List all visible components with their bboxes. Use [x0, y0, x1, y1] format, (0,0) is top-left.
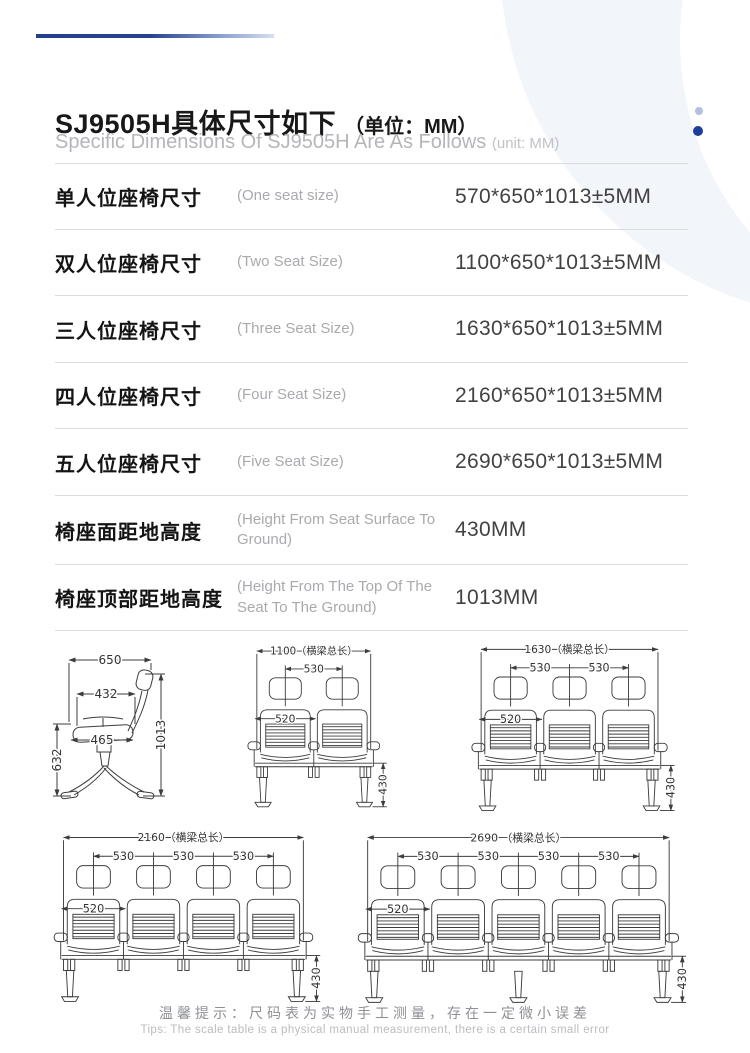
row-label-en: (Height From The Top Of The Seat To The … [237, 577, 455, 618]
dim-label: 530 [530, 661, 551, 674]
headrest-outline [135, 669, 154, 692]
dim-label: 530 [598, 850, 620, 863]
table-row: 三人位座椅尺寸 (Three Seat Size) 1630*650*1013±… [55, 296, 688, 363]
dim-label: 530 [588, 661, 609, 674]
row-value: 430MM [455, 518, 527, 542]
dim-seat-length: 465 [91, 733, 114, 747]
leg-outline [69, 766, 106, 795]
dim-label: 530 [538, 850, 560, 863]
front-view-svg: 2160（横梁总长）530530530520430 [52, 830, 328, 1008]
backrest-outline [132, 690, 148, 733]
row-label-en: (Two Seat Size) [237, 252, 455, 272]
dim-total-height: 1013 [154, 720, 168, 751]
row-label-en: (Four Seat Size) [237, 385, 455, 405]
front-view-5-seat: 2690 （横梁总长）530530530530520430 [356, 830, 694, 1014]
dim-label: 430 [665, 777, 678, 798]
front-view-svg: 1100（横梁总长）530520430 [246, 644, 394, 813]
row-value: 2160*650*1013±5MM [455, 384, 663, 408]
page-subtitle: Specific Dimensions Of SJ9505H Are As Fo… [55, 131, 559, 154]
row-label-en: (Three Seat Size) [237, 319, 455, 339]
dim-label: 430 [676, 968, 689, 990]
table-row: 四人位座椅尺寸 (Four Seat Size) 2160*650*1013±5… [55, 363, 688, 429]
row-label-zh: 椅座面距地高度 [55, 516, 237, 545]
front-view-svg: 2690 （横梁总长）530530530530520430 [356, 830, 694, 1009]
side-view-diagram: 650 432 465 1013 632 [47, 646, 169, 808]
table-row: 椅座顶部距地高度 (Height From The Top Of The Sea… [55, 565, 688, 631]
dim-label: 2690 （横梁总长） [470, 830, 566, 844]
row-value: 2690*650*1013±5MM [455, 450, 663, 474]
dim-label: 530 [477, 850, 499, 863]
front-view-2-seat: 1100（横梁总长）530520430 [246, 644, 394, 818]
front-view-3-seat: 1630（横梁总长）530530520430 [470, 642, 682, 822]
dim-label: 530 [233, 850, 254, 863]
row-value: 1100*650*1013±5MM [455, 251, 662, 275]
row-value: 570*650*1013±5MM [455, 185, 651, 209]
footer-tip-en: Tips: The scale table is a physical manu… [0, 1024, 750, 1036]
content: SJ9505H具体尺寸如下 （单位：MM） Specific Dimension… [0, 0, 750, 1053]
decorative-dot-light [695, 107, 703, 115]
dim-label: 520 [275, 712, 296, 725]
row-label-zh: 四人位座椅尺寸 [55, 381, 237, 410]
front-view-4-seat: 2160（横梁总长）530530530520430 [52, 830, 328, 1013]
spec-table: 单人位座椅尺寸 (One seat size) 570*650*1013±5MM… [55, 163, 688, 631]
dim-seat-depth: 432 [95, 687, 118, 701]
decorative-dot-dark [693, 126, 703, 136]
dim-label: 530 [113, 850, 134, 863]
table-row: 椅座面距地高度 (Height From Seat Surface To Gro… [55, 496, 688, 565]
dim-label: 520 [83, 902, 104, 915]
row-label-zh: 三人位座椅尺寸 [55, 315, 237, 344]
table-row: 单人位座椅尺寸 (One seat size) 570*650*1013±5MM [55, 164, 688, 230]
dim-label: 430 [310, 967, 323, 988]
accent-line [36, 34, 274, 38]
dim-label: 1100（横梁总长） [270, 645, 357, 658]
row-label-zh: 单人位座椅尺寸 [55, 182, 237, 211]
dim-label: 520 [500, 713, 521, 726]
dim-label: 530 [417, 850, 439, 863]
row-label-zh: 五人位座椅尺寸 [55, 448, 237, 477]
row-label-zh: 椅座顶部距地高度 [55, 583, 237, 612]
page-subtitle-unit: (unit: MM) [492, 135, 560, 152]
dim-label: 430 [377, 774, 390, 795]
dim-label: 530 [304, 662, 325, 675]
spec-sheet-page: SJ9505H具体尺寸如下 （单位：MM） Specific Dimension… [0, 0, 750, 1053]
row-label-zh: 双人位座椅尺寸 [55, 248, 237, 277]
row-label-en: (Five Seat Size) [237, 452, 455, 472]
dim-label: 2160（横梁总长） [137, 831, 229, 844]
dim-label: 520 [387, 903, 409, 916]
row-label-en: (Height From Seat Surface To Ground) [237, 510, 455, 551]
table-row: 双人位座椅尺寸 (Two Seat Size) 1100*650*1013±5M… [55, 230, 688, 296]
footer-tip-zh: 温馨提示：尺码表为实物手工测量，存在一定微小误差 [0, 1003, 750, 1023]
page-subtitle-text: Specific Dimensions Of SJ9505H Are As Fo… [55, 131, 486, 153]
dim-label: 1630（横梁总长） [524, 643, 614, 656]
dim-under-height: 632 [50, 749, 64, 772]
row-value: 1630*650*1013±5MM [455, 317, 663, 341]
row-value: 1013MM [455, 586, 539, 610]
dim-depth: 650 [99, 653, 122, 667]
front-view-svg: 1630（横梁总长）530530520430 [470, 642, 682, 817]
table-row: 五人位座椅尺寸 (Five Seat Size) 2690*650*1013±5… [55, 429, 688, 496]
row-label-en: (One seat size) [237, 186, 455, 206]
dim-label: 530 [173, 850, 194, 863]
